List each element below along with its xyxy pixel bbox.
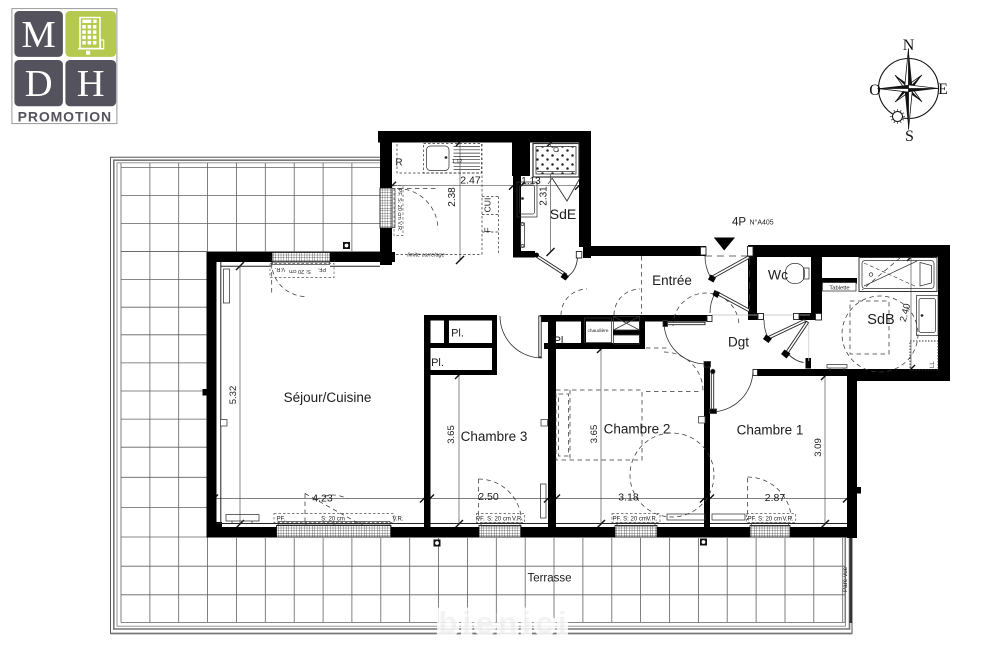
svg-text:Terrasse: Terrasse	[527, 573, 571, 585]
svg-text:1.12: 1.12	[452, 159, 463, 165]
svg-text:V.R.: V.R.	[274, 266, 285, 272]
svg-text:SdB: SdB	[867, 312, 894, 328]
svg-text:PF.: PF.	[318, 266, 326, 272]
svg-text:VID: VID	[623, 319, 630, 324]
svg-text:N°A405: N°A405	[750, 218, 774, 226]
svg-text:Entrée: Entrée	[652, 273, 692, 288]
svg-text:Chambre 3: Chambre 3	[461, 429, 528, 444]
svg-text:R: R	[395, 158, 402, 169]
svg-text:S: S	[905, 128, 914, 145]
svg-text:V.R.: V.R.	[782, 517, 793, 523]
svg-text:2.31: 2.31	[539, 186, 550, 206]
svg-text:S: 20 cm: S: 20 cm	[758, 517, 782, 523]
svg-text:V.R.: V.R.	[646, 517, 657, 523]
svg-text:S: 20 cm: S: 20 cm	[321, 517, 345, 523]
svg-text:PF.: PF.	[613, 517, 622, 523]
svg-text:H: H	[77, 63, 105, 105]
svg-text:M: M	[21, 14, 55, 56]
svg-text:V.R.: V.R.	[512, 517, 523, 523]
svg-text:Tablette: Tablette	[829, 285, 849, 291]
svg-text:Chambre 1: Chambre 1	[737, 423, 804, 438]
svg-text:3.65: 3.65	[589, 425, 600, 444]
svg-text:F: F	[483, 227, 493, 232]
svg-text:E: E	[938, 81, 948, 98]
svg-text:S: 20 cm: S: 20 cm	[289, 268, 311, 274]
svg-text:Pl.: Pl.	[451, 328, 464, 340]
svg-text:4.23: 4.23	[312, 493, 333, 505]
svg-text:SdE: SdE	[550, 206, 576, 222]
svg-text:Pl.: Pl.	[431, 357, 444, 369]
svg-text:Chambre 2: Chambre 2	[604, 422, 671, 437]
svg-text:PF.: PF.	[748, 517, 757, 523]
svg-text:1.13: 1.13	[521, 176, 541, 187]
svg-text:PROMOTION: PROMOTION	[18, 109, 112, 125]
svg-text:Wc: Wc	[768, 267, 788, 283]
svg-text:PF.: PF.	[476, 517, 485, 523]
svg-text:2.50: 2.50	[478, 491, 499, 503]
svg-text:Pl.: Pl.	[554, 335, 567, 347]
svg-text:5.32: 5.32	[228, 386, 239, 405]
svg-text:bienici: bienici	[438, 605, 571, 640]
svg-text:CUI: CUI	[483, 198, 493, 213]
svg-text:PF.: PF.	[277, 517, 286, 523]
svg-text:3.09: 3.09	[813, 438, 824, 457]
svg-text:S: 20 cm: S: 20 cm	[487, 517, 511, 523]
svg-text:2.47: 2.47	[460, 175, 481, 187]
svg-text:O: O	[869, 82, 881, 99]
svg-text:2.38: 2.38	[447, 187, 458, 207]
svg-text:N: N	[903, 37, 915, 54]
svg-text:2.87: 2.87	[765, 492, 786, 504]
svg-text:4P: 4P	[732, 217, 746, 229]
svg-text:Séjour/Cuisine: Séjour/Cuisine	[284, 390, 372, 405]
svg-text:3.18: 3.18	[618, 492, 639, 504]
svg-text:D: D	[25, 63, 53, 105]
svg-text:limite carrelage: limite carrelage	[407, 253, 444, 259]
svg-text:chaudière: chaudière	[587, 328, 608, 334]
svg-text:S: 20 cm: S: 20 cm	[623, 517, 647, 523]
svg-text:Pare-vue: Pare-vue	[842, 566, 849, 592]
svg-text:3.65: 3.65	[446, 425, 457, 444]
svg-text:LL: LL	[930, 361, 936, 368]
svg-text:Dgt: Dgt	[728, 335, 749, 350]
svg-text:PF. S: 20 cm V.R.: PF. S: 20 cm V.R.	[396, 189, 402, 232]
